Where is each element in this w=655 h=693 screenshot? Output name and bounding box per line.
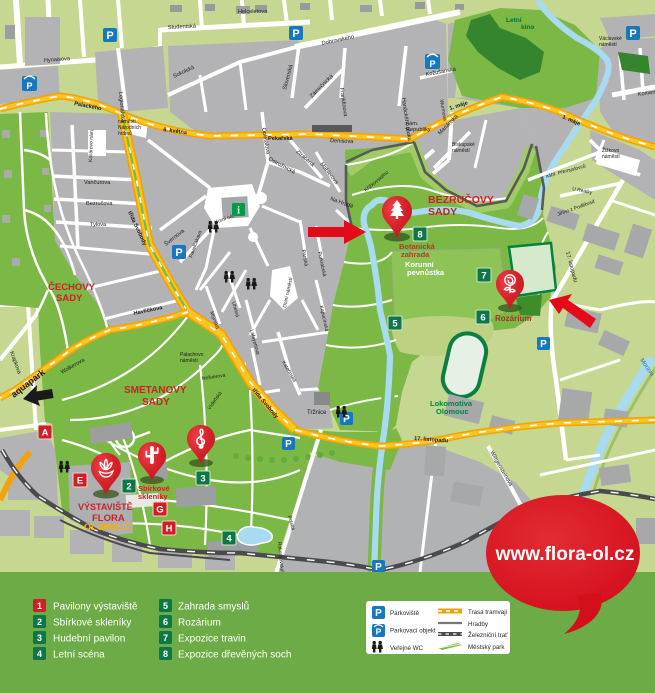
svg-text:3: 3 bbox=[200, 474, 205, 485]
svg-text:SADY: SADY bbox=[56, 293, 83, 304]
svg-text:Olomouc: Olomouc bbox=[436, 407, 469, 416]
svg-text:G: G bbox=[156, 505, 163, 516]
svg-text:P: P bbox=[375, 562, 382, 573]
svg-text:Železniční trať: Železniční trať bbox=[468, 631, 508, 639]
svg-text:6: 6 bbox=[480, 313, 485, 324]
svg-text:3: 3 bbox=[37, 633, 42, 643]
svg-text:Expozice travin: Expozice travin bbox=[178, 634, 246, 645]
svg-text:Rozárium: Rozárium bbox=[495, 314, 531, 323]
svg-text:8: 8 bbox=[417, 230, 422, 241]
svg-text:P: P bbox=[292, 28, 299, 40]
svg-text:BEZRUČOVY: BEZRUČOVY bbox=[428, 193, 494, 206]
svg-text:Vančurova: Vančurova bbox=[84, 180, 111, 186]
svg-text:P: P bbox=[540, 339, 547, 350]
svg-text:Republiky: Republiky bbox=[406, 127, 431, 133]
svg-text:Kollárovo nám.: Kollárovo nám. bbox=[88, 129, 95, 163]
svg-text:SADY: SADY bbox=[142, 397, 170, 408]
svg-text:SADY: SADY bbox=[428, 206, 457, 218]
svg-text:2: 2 bbox=[126, 482, 131, 493]
svg-text:P: P bbox=[26, 81, 32, 91]
svg-text:P: P bbox=[285, 439, 292, 450]
svg-text:ČECHOVY: ČECHOVY bbox=[48, 281, 96, 293]
svg-text:6: 6 bbox=[163, 617, 168, 627]
svg-text:Letní scéna: Letní scéna bbox=[53, 650, 105, 661]
svg-text:P: P bbox=[629, 28, 636, 40]
svg-text:náměstí: náměstí bbox=[599, 42, 617, 48]
svg-text:Hudební pavilon: Hudební pavilon bbox=[53, 634, 125, 645]
svg-text:Denisova: Denisova bbox=[330, 138, 354, 145]
svg-text:Tylova: Tylova bbox=[90, 222, 107, 228]
svg-text:P: P bbox=[376, 627, 382, 637]
svg-text:VÝSTAVIŠTĚ: VÝSTAVIŠTĚ bbox=[78, 501, 133, 512]
svg-text:Parkoviště: Parkoviště bbox=[390, 610, 419, 617]
svg-text:Městský park: Městský park bbox=[468, 644, 505, 651]
svg-text:SMETANOVY: SMETANOVY bbox=[124, 385, 187, 396]
svg-text:4: 4 bbox=[37, 649, 42, 659]
svg-text:Rozárium: Rozárium bbox=[178, 618, 221, 629]
svg-text:H: H bbox=[166, 524, 173, 535]
svg-text:Pavilony výstaviště: Pavilony výstaviště bbox=[53, 602, 138, 613]
svg-text:skleníky: skleníky bbox=[138, 492, 168, 501]
svg-text:7: 7 bbox=[481, 271, 486, 282]
svg-text:Parkovací objekt: Parkovací objekt bbox=[390, 628, 436, 635]
svg-text:4: 4 bbox=[226, 534, 232, 545]
svg-text:náměstí: náměstí bbox=[452, 148, 470, 154]
svg-text:5: 5 bbox=[392, 319, 398, 330]
svg-text:E: E bbox=[77, 476, 83, 487]
svg-text:Hradby: Hradby bbox=[468, 621, 489, 628]
svg-text:OLOMOUC: OLOMOUC bbox=[84, 522, 131, 532]
svg-text:Zahrada smyslů: Zahrada smyslů bbox=[178, 601, 249, 613]
svg-text:Pekařská: Pekařská bbox=[268, 136, 293, 142]
svg-text:8: 8 bbox=[163, 649, 168, 659]
svg-text:Expozice dřevěných soch: Expozice dřevěných soch bbox=[178, 650, 291, 661]
svg-text:P: P bbox=[175, 247, 182, 259]
svg-text:Sbírkové skleníky: Sbírkové skleníky bbox=[53, 618, 131, 629]
svg-text:P: P bbox=[106, 30, 113, 42]
svg-text:Helceletova: Helceletova bbox=[238, 9, 268, 15]
svg-text:2: 2 bbox=[37, 617, 42, 627]
svg-text:i: i bbox=[237, 206, 240, 217]
svg-text:Letní: Letní bbox=[506, 17, 522, 24]
svg-text:Veřejné WC: Veřejné WC bbox=[390, 645, 424, 652]
svg-text:náměstí: náměstí bbox=[180, 358, 198, 364]
svg-text:Tržnice: Tržnice bbox=[307, 410, 327, 416]
svg-text:kino: kino bbox=[521, 24, 534, 31]
svg-text:pevnůstka: pevnůstka bbox=[407, 268, 445, 277]
svg-text:zahrada: zahrada bbox=[401, 250, 430, 259]
svg-text:7: 7 bbox=[163, 633, 168, 643]
svg-text:www.flora-ol.cz: www.flora-ol.cz bbox=[495, 544, 635, 565]
svg-text:P: P bbox=[429, 59, 435, 69]
svg-text:Žižkovo: Žižkovo bbox=[602, 146, 619, 154]
svg-text:1: 1 bbox=[37, 601, 42, 611]
svg-text:náměstí: náměstí bbox=[602, 154, 620, 160]
svg-text:hrdinů: hrdinů bbox=[118, 130, 132, 137]
svg-text:A: A bbox=[42, 428, 49, 439]
svg-text:Bezručova: Bezručova bbox=[86, 201, 113, 207]
svg-text:Trasa tramvají: Trasa tramvají bbox=[468, 609, 508, 616]
svg-text:P: P bbox=[375, 608, 382, 619]
svg-text:5: 5 bbox=[163, 601, 168, 611]
